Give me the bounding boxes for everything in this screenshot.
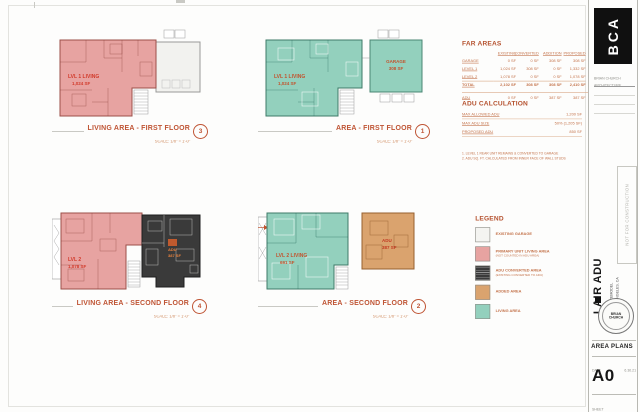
firm-name-line: BRIAN CHURCH — [594, 67, 636, 74]
logo-text: BCA — [605, 16, 621, 55]
caption-rule — [258, 306, 318, 307]
legend-swatch — [475, 227, 490, 242]
detail-bubble: 2 — [411, 299, 426, 314]
sheet-number: A0 — [592, 366, 615, 386]
plan-title: AREA - SECOND FLOOR — [322, 300, 408, 307]
caption-rule — [52, 306, 73, 307]
caption-rule — [258, 131, 332, 132]
area-value: 1,078 SF — [68, 264, 87, 269]
architect-stamp: BRIAN CHURCH — [598, 298, 634, 334]
area-value: 691 SF — [280, 260, 295, 265]
plan-scale: SCALE: 1/8" = 1'-0" — [376, 140, 412, 144]
roof-box — [389, 30, 399, 38]
far-areas-table: EXISTING CONVERTED ADDITION PROPOSED GAR… — [462, 50, 588, 81]
row-label: LEVEL 1 — [462, 65, 493, 73]
cell: 0 SF — [516, 57, 539, 65]
far-areas-section: FAR AREAS EXISTING CONVERTED ADDITION PR… — [462, 40, 588, 102]
legend-item: ADU CONVERTED AREA(EXISTING CONVERTED TO… — [475, 266, 583, 281]
adu-highlight — [168, 239, 177, 246]
area-value: 1,024 SF — [72, 81, 91, 86]
cell: 308 SF — [562, 57, 586, 65]
floor-plan-drawing: ADU 387 SF LVL 2 LIVING 691 SF — [258, 203, 426, 297]
far-total-row: TOTAL 2,102 SF 308 SF 308 SF 2,410 SF — [462, 81, 588, 89]
legend-item: PRIMARY UNIT LIVING AREA(NOT COUNTED IN … — [475, 246, 583, 261]
cell: 1,078 SF — [562, 73, 586, 81]
calc-row: PROPOSED ADU 850 SF — [462, 128, 582, 137]
drawing-sheet: LVL 1 LIVING 1,024 SF LIVING AREA - FIRS… — [0, 0, 640, 412]
plan-caption: AREA - SECOND FLOOR SCALE: 1/8" = 1'-0" … — [258, 299, 426, 314]
cell: 1,024 SF — [493, 65, 516, 73]
adu-calc-title: ADU CALCULATION — [462, 100, 582, 107]
plan-caption: AREA - FIRST FLOOR SCALE: 1/8" = 1'-0" 1 — [258, 124, 430, 139]
adu-label: ADU — [382, 238, 392, 243]
entry-steps — [380, 94, 414, 102]
legend-swatch — [475, 266, 490, 281]
sheet-label: SHEET — [592, 398, 636, 405]
area-label: LVL 2 — [68, 257, 81, 263]
roof-box — [175, 30, 185, 38]
floor-plan-drawing: GARAGE 308 SF LVL 1 LIVING 1,024 SF — [258, 28, 430, 122]
legend-swatch — [475, 304, 490, 319]
plan-scale: SCALE: 1/8" = 1'-0" — [372, 315, 408, 319]
adu-value: 387 SF — [382, 245, 397, 250]
cell: 308 SF — [539, 57, 562, 65]
garage-label: GARAGE — [386, 59, 406, 64]
detail-bubble: 1 — [415, 124, 430, 139]
roof-box — [378, 30, 388, 38]
plan-living-first-floor: LVL 1 LIVING 1,024 SF LIVING AREA - FIRS… — [52, 28, 208, 146]
legend-item: ADDED AREA — [475, 285, 583, 300]
plan-area-second-floor: ADU 387 SF LVL 2 LIVING 691 SF AREA - SE… — [258, 203, 426, 321]
plan-caption: LIVING AREA - FIRST FLOOR SCALE: 1/8" = … — [52, 124, 208, 139]
adu-calc-section: ADU CALCULATION MAX ALLOWED ADU 1,200 SF… — [462, 100, 582, 137]
col-header: ADDITION — [539, 50, 562, 58]
cell: 0 SF — [493, 57, 516, 65]
area-label: LVL 2 LIVING — [276, 253, 307, 259]
area-label: LVL 1 LIVING — [68, 74, 99, 80]
date-row: DATE 6.30.21 — [592, 359, 636, 366]
floor-plan-drawing: LVL 1 LIVING 1,024 SF — [52, 28, 208, 122]
col-header: EXISTING — [493, 50, 516, 58]
firm-name-line: ARCHITECTURE — [594, 74, 636, 81]
sheet-title: AREA PLANS — [588, 344, 636, 350]
area-value: 1,024 SF — [278, 81, 297, 86]
plan-scale: SCALE: 1/8" = 1'-0" — [154, 140, 190, 144]
divider — [592, 394, 636, 395]
cell: 1,078 SF — [493, 73, 516, 81]
legend-swatch — [475, 246, 490, 261]
plan-title: AREA - FIRST FLOOR — [336, 125, 412, 132]
firm-logo: BCA — [594, 8, 632, 64]
detail-bubble: 3 — [193, 124, 208, 139]
plan-scale: SCALE: 1/8" = 1'-0" — [153, 315, 189, 319]
adu-value: 387 SF — [168, 253, 181, 258]
adu-label: ADU — [168, 247, 177, 252]
cell: 0 SF — [539, 65, 562, 73]
legend-item: LIVING AREA — [475, 304, 583, 319]
notes: 1. LEVEL 1 REAR UNIT REMAINS & CONVERTED… — [462, 152, 588, 162]
note-line: 2. ADU SQ. FT. CALCULATED FROM INNER FAC… — [462, 157, 588, 162]
caption-rule — [52, 131, 84, 132]
existing-garage-area — [156, 42, 200, 92]
date-value: 6.30.21 — [616, 359, 636, 366]
stairs — [128, 261, 140, 287]
col-header: PROPOSED — [562, 50, 586, 58]
edge-tick — [34, 2, 35, 8]
info-column: FAR AREAS EXISTING CONVERTED ADDITION PR… — [462, 40, 588, 412]
legend: LEGEND EXISTING GARAGE PRIMARY UNIT LIVI… — [475, 215, 583, 323]
stairs — [336, 267, 348, 289]
date-label: DATE — [592, 359, 608, 366]
legend-title: LEGEND — [475, 215, 583, 222]
row-label: LEVEL 2 — [462, 73, 493, 81]
cell: 308 SF — [516, 65, 539, 73]
calc-row: MAX ALLOWED ADU 1,200 SF — [462, 110, 582, 119]
roof-box — [164, 30, 174, 38]
sheet-right-edge — [637, 0, 638, 412]
divider — [592, 340, 636, 341]
col-header: CONVERTED — [516, 50, 539, 58]
garage-value: 308 SF — [389, 66, 404, 71]
detail-bubble: 4 — [192, 299, 207, 314]
row-label: GARAGE — [462, 57, 493, 65]
plan-caption: LIVING AREA - SECOND FLOOR SCALE: 1/8" =… — [52, 299, 207, 314]
revision-block — [594, 86, 635, 122]
plan-title: LIVING AREA - FIRST FLOOR — [88, 125, 190, 132]
legend-item: EXISTING GARAGE — [475, 227, 583, 242]
cell: 0 SF — [516, 73, 539, 81]
porch — [52, 219, 61, 279]
divider — [592, 356, 636, 357]
titleblock-divider — [588, 0, 589, 412]
far-areas-title: FAR AREAS — [462, 40, 588, 47]
legend-swatch — [475, 285, 490, 300]
calc-row: MAX ADU SIZE 50% (1,205 SF) — [462, 119, 582, 127]
plan-area-first-floor: GARAGE 308 SF LVL 1 LIVING 1,024 SF AREA… — [258, 28, 430, 146]
floor-plan-drawing: ADU 387 SF LVL 2 1,078 SF — [52, 203, 207, 297]
plan-title: LIVING AREA - SECOND FLOOR — [77, 300, 189, 307]
cell: 0 SF — [539, 73, 562, 81]
cell: 1,332 SF — [562, 65, 586, 73]
edge-tick — [176, 0, 185, 3]
plan-living-second-floor: ADU 387 SF LVL 2 1,078 SF LIVING AREA - … — [52, 203, 207, 321]
stamp-corner-mark — [595, 297, 601, 303]
area-label: LVL 1 LIVING — [274, 74, 305, 80]
